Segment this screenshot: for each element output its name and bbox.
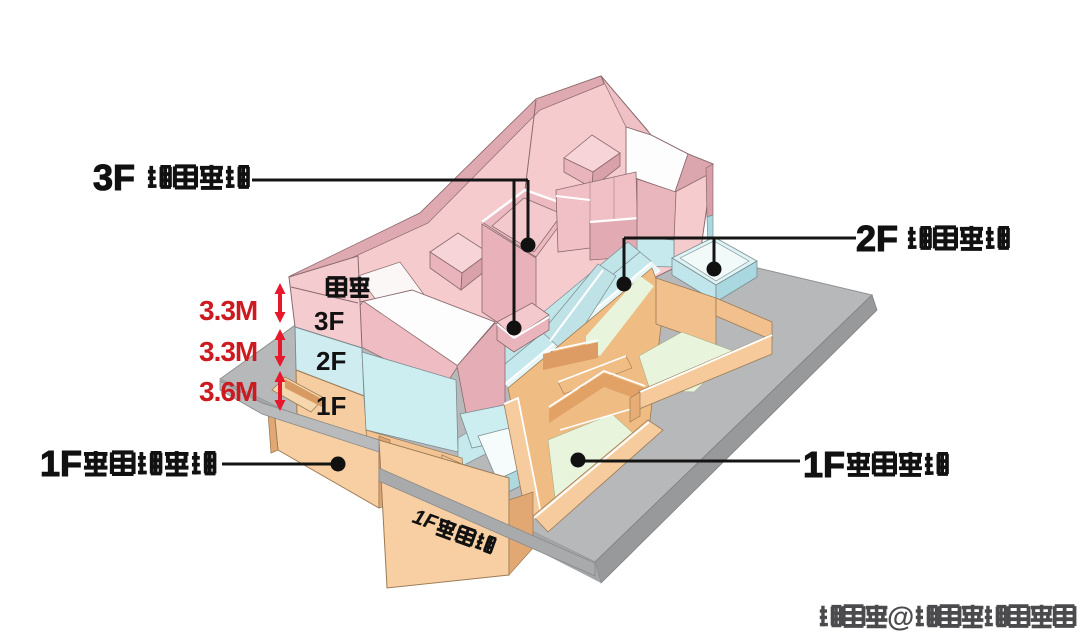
- svg-text:1F: 1F: [40, 443, 82, 484]
- svg-text:3.6M: 3.6M: [199, 376, 257, 407]
- svg-text:2F: 2F: [316, 346, 346, 376]
- svg-text:1F: 1F: [803, 444, 845, 485]
- svg-text:3.3M: 3.3M: [199, 295, 257, 326]
- svg-text:1F: 1F: [316, 391, 346, 421]
- svg-text:3.3M: 3.3M: [199, 336, 257, 367]
- svg-text:@: @: [887, 601, 914, 632]
- svg-text:3F: 3F: [93, 157, 135, 198]
- svg-text:3F: 3F: [314, 306, 344, 336]
- svg-text:2F: 2F: [856, 218, 898, 259]
